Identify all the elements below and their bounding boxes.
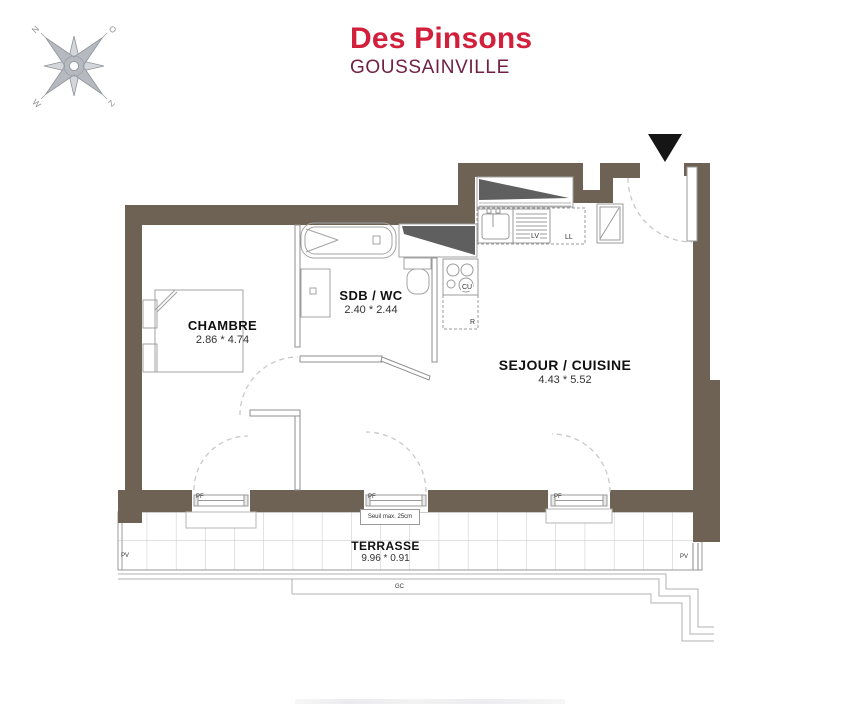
seuil-label: Seuil max. 25cm — [360, 509, 420, 525]
bathtub-icon — [301, 223, 396, 258]
sdb-dims: 2.40 * 2.44 — [305, 304, 437, 316]
lv-label: LV — [530, 233, 540, 240]
terrasse-label: TERRASSE — [323, 539, 448, 553]
sdb-label: SDB / WC — [305, 288, 437, 303]
pv-left-label: PV — [121, 553, 129, 559]
sejour-dims: 4.43 * 5.52 — [462, 374, 668, 386]
guardrail — [118, 574, 714, 641]
entrance — [648, 134, 697, 241]
bottom-cropped-artifact — [295, 699, 565, 704]
exterior-walls — [118, 163, 720, 542]
pf3-label: PF — [554, 494, 562, 500]
bathroom-door-leaf — [381, 357, 430, 380]
room-sejour: SEJOUR / CUISINE 4.43 * 5.52 — [462, 357, 668, 386]
r-label: R — [469, 319, 476, 326]
pf2-label: PF — [368, 494, 376, 500]
arc-pf1 — [194, 436, 248, 490]
kitchen-sink-icon — [478, 209, 513, 243]
entrance-arrow-icon — [648, 134, 682, 162]
arc-pf3 — [552, 434, 610, 492]
floorplan-page: N O Z W Des Pinsons GOUSSAINVILLE — [0, 0, 860, 704]
pv-right-label: PV — [680, 554, 688, 560]
room-chambre: CHAMBRE 2.86 * 4.74 — [140, 318, 305, 346]
arc-entrance-door — [628, 178, 692, 242]
sejour-label: SEJOUR / CUISINE — [462, 357, 668, 373]
room-terrasse: TERRASSE 9.96 * 0.91 — [323, 539, 448, 564]
arc-bedroom-door — [240, 357, 298, 415]
entrance-door-leaf — [687, 167, 697, 241]
arc-pf2 — [366, 432, 426, 492]
chambre-label: CHAMBRE — [140, 318, 305, 333]
utility-closet-icon — [597, 204, 623, 243]
chambre-dims: 2.86 * 4.74 — [140, 334, 305, 346]
floor-plan-drawing — [0, 0, 860, 704]
terrasse-dims: 9.96 * 0.91 — [323, 553, 448, 564]
pf1-label: PF — [196, 494, 204, 500]
cu-label: CU — [461, 284, 473, 291]
ll-label: LL — [564, 234, 574, 241]
gc-label: GC — [395, 584, 404, 590]
room-sdb: SDB / WC 2.40 * 2.44 — [305, 288, 437, 316]
